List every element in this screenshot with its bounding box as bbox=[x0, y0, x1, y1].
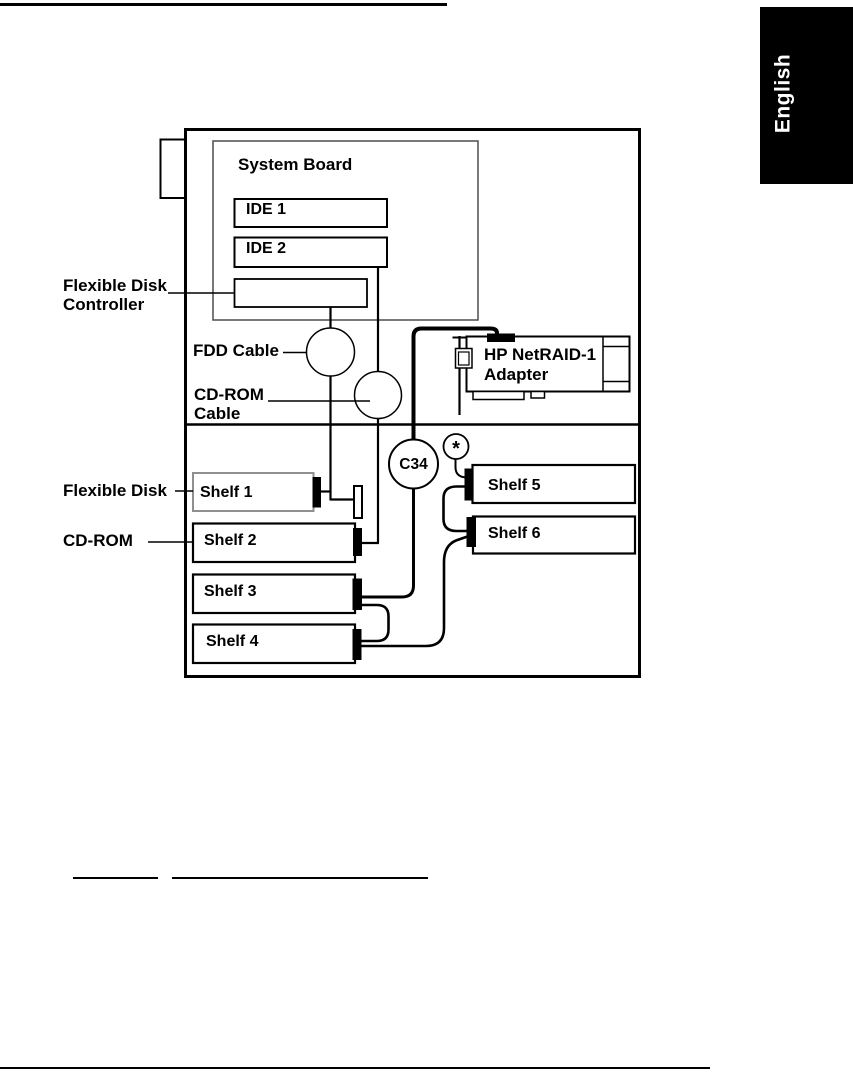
fdc-box bbox=[235, 279, 368, 307]
cdrom-cable-callout-circle bbox=[355, 372, 402, 419]
cdrom-cable-label: CD-ROMCable bbox=[194, 386, 264, 423]
chassis-notch bbox=[161, 140, 186, 199]
shelf2-connector bbox=[353, 528, 362, 556]
flexible-disk-controller-label: Flexible DiskController bbox=[63, 277, 167, 314]
system-board-label: System Board bbox=[238, 156, 352, 174]
shelf4-connector bbox=[353, 629, 362, 660]
netraid-label-line2: Adapter bbox=[484, 365, 548, 384]
cdrom-label: CD-ROM bbox=[63, 532, 133, 550]
ide2-label: IDE 2 bbox=[246, 240, 286, 257]
shelf6-label: Shelf 6 bbox=[488, 525, 540, 542]
shelf2-label: Shelf 2 bbox=[204, 532, 256, 549]
netraid-label-line1: HP NetRAID-1 bbox=[484, 345, 596, 364]
fdc-label-line2: Controller bbox=[63, 295, 144, 314]
cdrom-cable-label-line1: CD-ROM bbox=[194, 385, 264, 404]
shelf6-connector bbox=[467, 517, 477, 547]
pci-edge-finger-2 bbox=[531, 392, 545, 399]
shelf1-connector bbox=[313, 477, 322, 508]
terminator-asterisk: * bbox=[444, 439, 468, 459]
manual-page: English bbox=[0, 0, 853, 1075]
c34-label: C34 bbox=[390, 456, 438, 474]
shelf5-label: Shelf 5 bbox=[488, 477, 540, 494]
shelf5-connector bbox=[465, 469, 474, 501]
flexible-disk-label: Flexible Disk bbox=[63, 482, 167, 500]
fdd-cable-callout-circle bbox=[307, 328, 355, 376]
netraid-adapter-label: HP NetRAID-1Adapter bbox=[484, 345, 596, 385]
cdrom-cable-label-line2: Cable bbox=[194, 404, 240, 423]
fdd-cable-label: FDD Cable bbox=[193, 342, 279, 360]
netraid-card-connector bbox=[487, 334, 515, 343]
cable-shelf3-to-shelf4 bbox=[361, 605, 389, 641]
shelf1-label: Shelf 1 bbox=[200, 484, 252, 501]
ide1-label: IDE 1 bbox=[246, 201, 286, 218]
pci-edge-finger-1 bbox=[473, 392, 524, 400]
shelf4-label: Shelf 4 bbox=[206, 633, 258, 650]
fdd-terminator bbox=[354, 486, 362, 518]
shelf3-label: Shelf 3 bbox=[204, 583, 256, 600]
fdc-label-line1: Flexible Disk bbox=[63, 276, 167, 295]
shelf3-connector bbox=[353, 579, 363, 611]
cable-shelf5-to-shelf6 bbox=[444, 487, 468, 532]
